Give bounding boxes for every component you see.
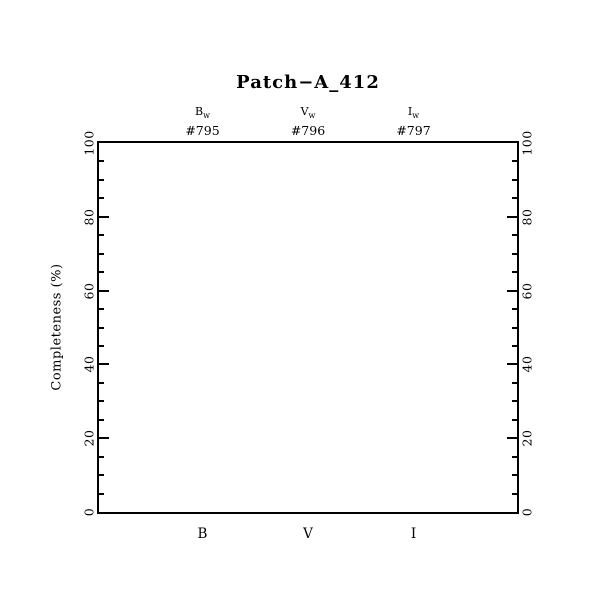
- y-axis-left-minor-tick: [99, 493, 104, 495]
- x-category-label: B: [198, 526, 208, 542]
- band-label: Vw: [291, 106, 325, 122]
- y-axis-left-major-tick: [99, 437, 109, 439]
- y-axis-left-minor-tick: [99, 179, 104, 181]
- y-axis-right-minor-tick: [512, 327, 517, 329]
- y-tick-label-right: 100: [520, 130, 535, 155]
- y-axis-right-major-tick: [507, 216, 517, 218]
- y-axis-left-minor-tick: [99, 382, 104, 384]
- x-axis-category-labels: BVI: [97, 526, 519, 546]
- band-column: Bw#795: [185, 106, 219, 138]
- y-axis-right-minor-tick: [512, 197, 517, 199]
- y-axis-right-minor-tick: [512, 179, 517, 181]
- y-tick-label-left: 40: [82, 356, 97, 373]
- y-axis-left-minor-tick: [99, 400, 104, 402]
- y-tick-label-right: 0: [520, 508, 535, 516]
- band-subscript: w: [412, 111, 419, 120]
- y-axis-left-minor-tick: [99, 271, 104, 273]
- plot-frame: [97, 141, 519, 514]
- y-axis-left-major-tick: [99, 290, 109, 292]
- top-band-annotations: Bw#795Vw#796Iw#797: [97, 106, 519, 142]
- y-axis-left-minor-tick: [99, 253, 104, 255]
- y-axis-right-minor-tick: [512, 456, 517, 458]
- y-axis-right-major-tick: [507, 437, 517, 439]
- y-axis-left-major-tick: [99, 363, 109, 365]
- band-column: Iw#797: [396, 106, 430, 138]
- y-axis-right-minor-tick: [512, 474, 517, 476]
- y-axis-right-minor-tick: [512, 400, 517, 402]
- y-axis-left-minor-tick: [99, 160, 104, 162]
- y-axis-left-major-tick: [99, 216, 109, 218]
- y-axis-left-minor-tick: [99, 456, 104, 458]
- y-axis-right-minor-tick: [512, 160, 517, 162]
- y-axis-left-minor-tick: [99, 345, 104, 347]
- y-tick-label-left: 100: [82, 130, 97, 155]
- chart-title: Patch−A_412: [97, 72, 519, 93]
- x-category-label: I: [411, 526, 416, 542]
- y-axis-right-minor-tick: [512, 345, 517, 347]
- field-number: #795: [185, 124, 219, 138]
- x-category-label: V: [303, 526, 313, 542]
- y-axis-right-minor-tick: [512, 419, 517, 421]
- y-tick-label-right: 40: [520, 356, 535, 373]
- y-tick-label-left: 0: [82, 508, 97, 516]
- y-axis-right-minor-tick: [512, 493, 517, 495]
- y-axis-left-minor-tick: [99, 474, 104, 476]
- y-axis-right-minor-tick: [512, 234, 517, 236]
- band-column: Vw#796: [291, 106, 325, 138]
- y-tick-label-right: 20: [520, 430, 535, 447]
- y-tick-label-left: 20: [82, 430, 97, 447]
- y-axis-left-minor-tick: [99, 234, 104, 236]
- y-tick-label-right: 60: [520, 282, 535, 299]
- y-axis-right-major-tick: [507, 290, 517, 292]
- band-label: Bw: [185, 106, 219, 122]
- y-axis-left-minor-tick: [99, 419, 104, 421]
- y-axis-right-major-tick: [507, 363, 517, 365]
- y-axis-right-minor-tick: [512, 382, 517, 384]
- y-axis-title: Completeness (%): [50, 263, 65, 390]
- band-subscript: w: [203, 111, 210, 120]
- completeness-figure: Patch−A_412 Bw#795Vw#796Iw#797 Completen…: [0, 0, 611, 611]
- y-axis-left-minor-tick: [99, 197, 104, 199]
- y-tick-label-left: 80: [82, 208, 97, 225]
- y-tick-label-right: 80: [520, 208, 535, 225]
- y-axis-right-minor-tick: [512, 308, 517, 310]
- band-letter: V: [301, 105, 309, 118]
- y-axis-right-minor-tick: [512, 253, 517, 255]
- field-number: #797: [396, 124, 430, 138]
- field-number: #796: [291, 124, 325, 138]
- y-axis-left-minor-tick: [99, 308, 104, 310]
- y-axis-right-minor-tick: [512, 271, 517, 273]
- band-letter: B: [195, 105, 203, 118]
- band-subscript: w: [309, 111, 316, 120]
- y-tick-label-left: 60: [82, 282, 97, 299]
- y-axis-left-minor-tick: [99, 327, 104, 329]
- band-label: Iw: [396, 106, 430, 122]
